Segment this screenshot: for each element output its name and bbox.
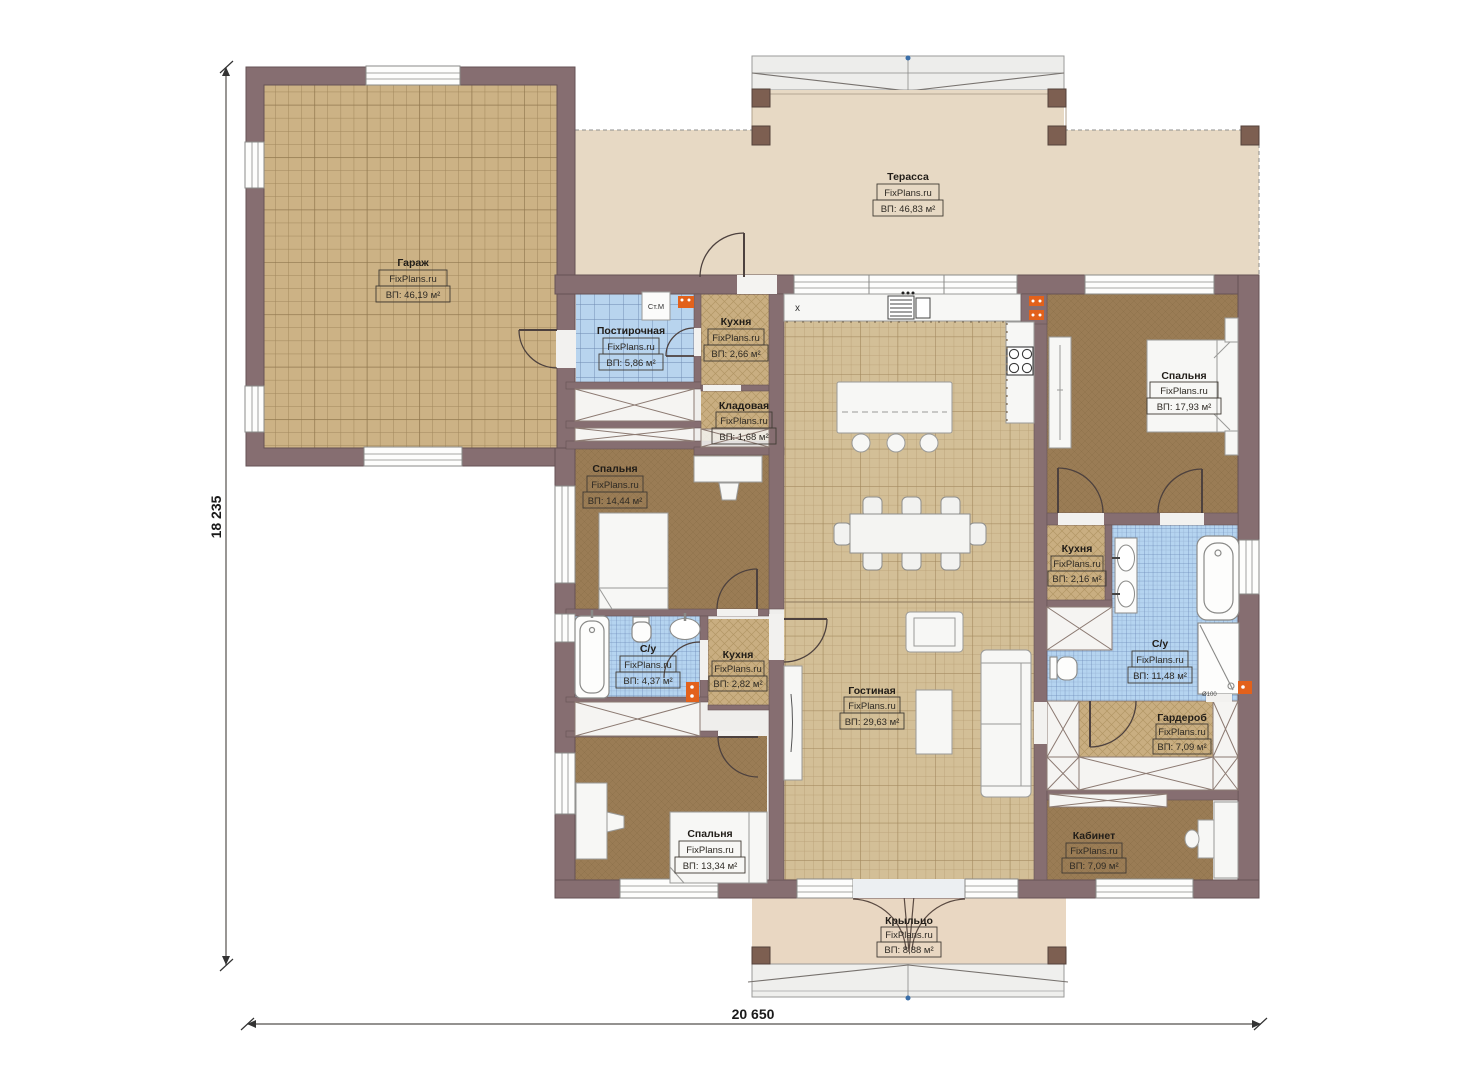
svg-text:ВП: 17,93 м²: ВП: 17,93 м² [1157,402,1212,413]
svg-text:Кабинет: Кабинет [1073,830,1116,842]
svg-text:x: x [795,303,800,314]
svg-text:FixPlans.ru: FixPlans.ru [1070,846,1118,857]
svg-text:FixPlans.ru: FixPlans.ru [607,342,655,353]
svg-text:FixPlans.ru: FixPlans.ru [712,333,760,344]
svg-text:FixPlans.ru: FixPlans.ru [848,701,896,712]
svg-text:FixPlans.ru: FixPlans.ru [1160,386,1208,397]
svg-text:Крыльцо: Крыльцо [885,915,933,927]
svg-text:Терасса: Терасса [887,171,929,183]
svg-text:ВП: 2,16 м²: ВП: 2,16 м² [1052,574,1101,585]
svg-text:ВП: 14,44 м²: ВП: 14,44 м² [588,496,643,507]
svg-text:FixPlans.ru: FixPlans.ru [1136,655,1184,666]
svg-text:ВП: 2,82 м²: ВП: 2,82 м² [713,679,762,690]
svg-text:20 650: 20 650 [732,1006,775,1022]
svg-text:ВП: 29,63 м²: ВП: 29,63 м² [845,717,900,728]
svg-text:ВП: 11,48 м²: ВП: 11,48 м² [1133,671,1187,682]
svg-text:Кухня: Кухня [721,316,752,328]
svg-text:ВП: 7,09 м²: ВП: 7,09 м² [1157,742,1206,753]
svg-text:Кухня: Кухня [1062,543,1093,555]
svg-text:FixPlans.ru: FixPlans.ru [686,845,734,856]
svg-text:ВП: 4,37 м²: ВП: 4,37 м² [623,676,672,687]
svg-text:FixPlans.ru: FixPlans.ru [714,664,762,675]
svg-text:ВП: 7,09 м²: ВП: 7,09 м² [1069,861,1118,872]
svg-text:Гостиная: Гостиная [848,685,895,697]
svg-text:ВП: 5,86 м²: ВП: 5,86 м² [606,358,655,369]
svg-text:FixPlans.ru: FixPlans.ru [720,416,768,427]
svg-text:Спальня: Спальня [1161,370,1206,382]
svg-text:ВП: 46,19 м²: ВП: 46,19 м² [386,290,441,301]
svg-text:ВП: 13,34 м²: ВП: 13,34 м² [683,861,738,872]
svg-text:ВП: 1,68 м²: ВП: 1,68 м² [719,432,768,443]
svg-text:Кухня: Кухня [723,649,754,661]
svg-text:FixPlans.ru: FixPlans.ru [1158,727,1206,738]
svg-text:FixPlans.ru: FixPlans.ru [885,930,933,941]
svg-text:Спальня: Спальня [687,828,732,840]
svg-text:Кладовая: Кладовая [719,400,769,412]
svg-text:Ст.М: Ст.М [648,302,664,311]
svg-text:Постирочная: Постирочная [597,325,665,337]
svg-text:18 235: 18 235 [208,495,224,538]
svg-text:FixPlans.ru: FixPlans.ru [389,274,437,285]
svg-text:Гараж: Гараж [397,257,429,269]
svg-text:FixPlans.ru: FixPlans.ru [624,660,672,671]
svg-text:ВП: 8,88 м²: ВП: 8,88 м² [884,945,933,956]
svg-text:FixPlans.ru: FixPlans.ru [591,480,639,491]
svg-text:FixPlans.ru: FixPlans.ru [1053,559,1101,570]
svg-text:Спальня: Спальня [592,463,637,475]
svg-text:Гардероб: Гардероб [1157,712,1207,724]
svg-text:ВП: 46,83 м²: ВП: 46,83 м² [881,204,936,215]
svg-text:FixPlans.ru: FixPlans.ru [884,188,932,199]
svg-text:ВП: 2,66 м²: ВП: 2,66 м² [711,349,760,360]
svg-text:Ø100: Ø100 [1202,692,1217,698]
svg-text:С/у: С/у [640,643,657,655]
svg-text:С/у: С/у [1152,638,1169,650]
